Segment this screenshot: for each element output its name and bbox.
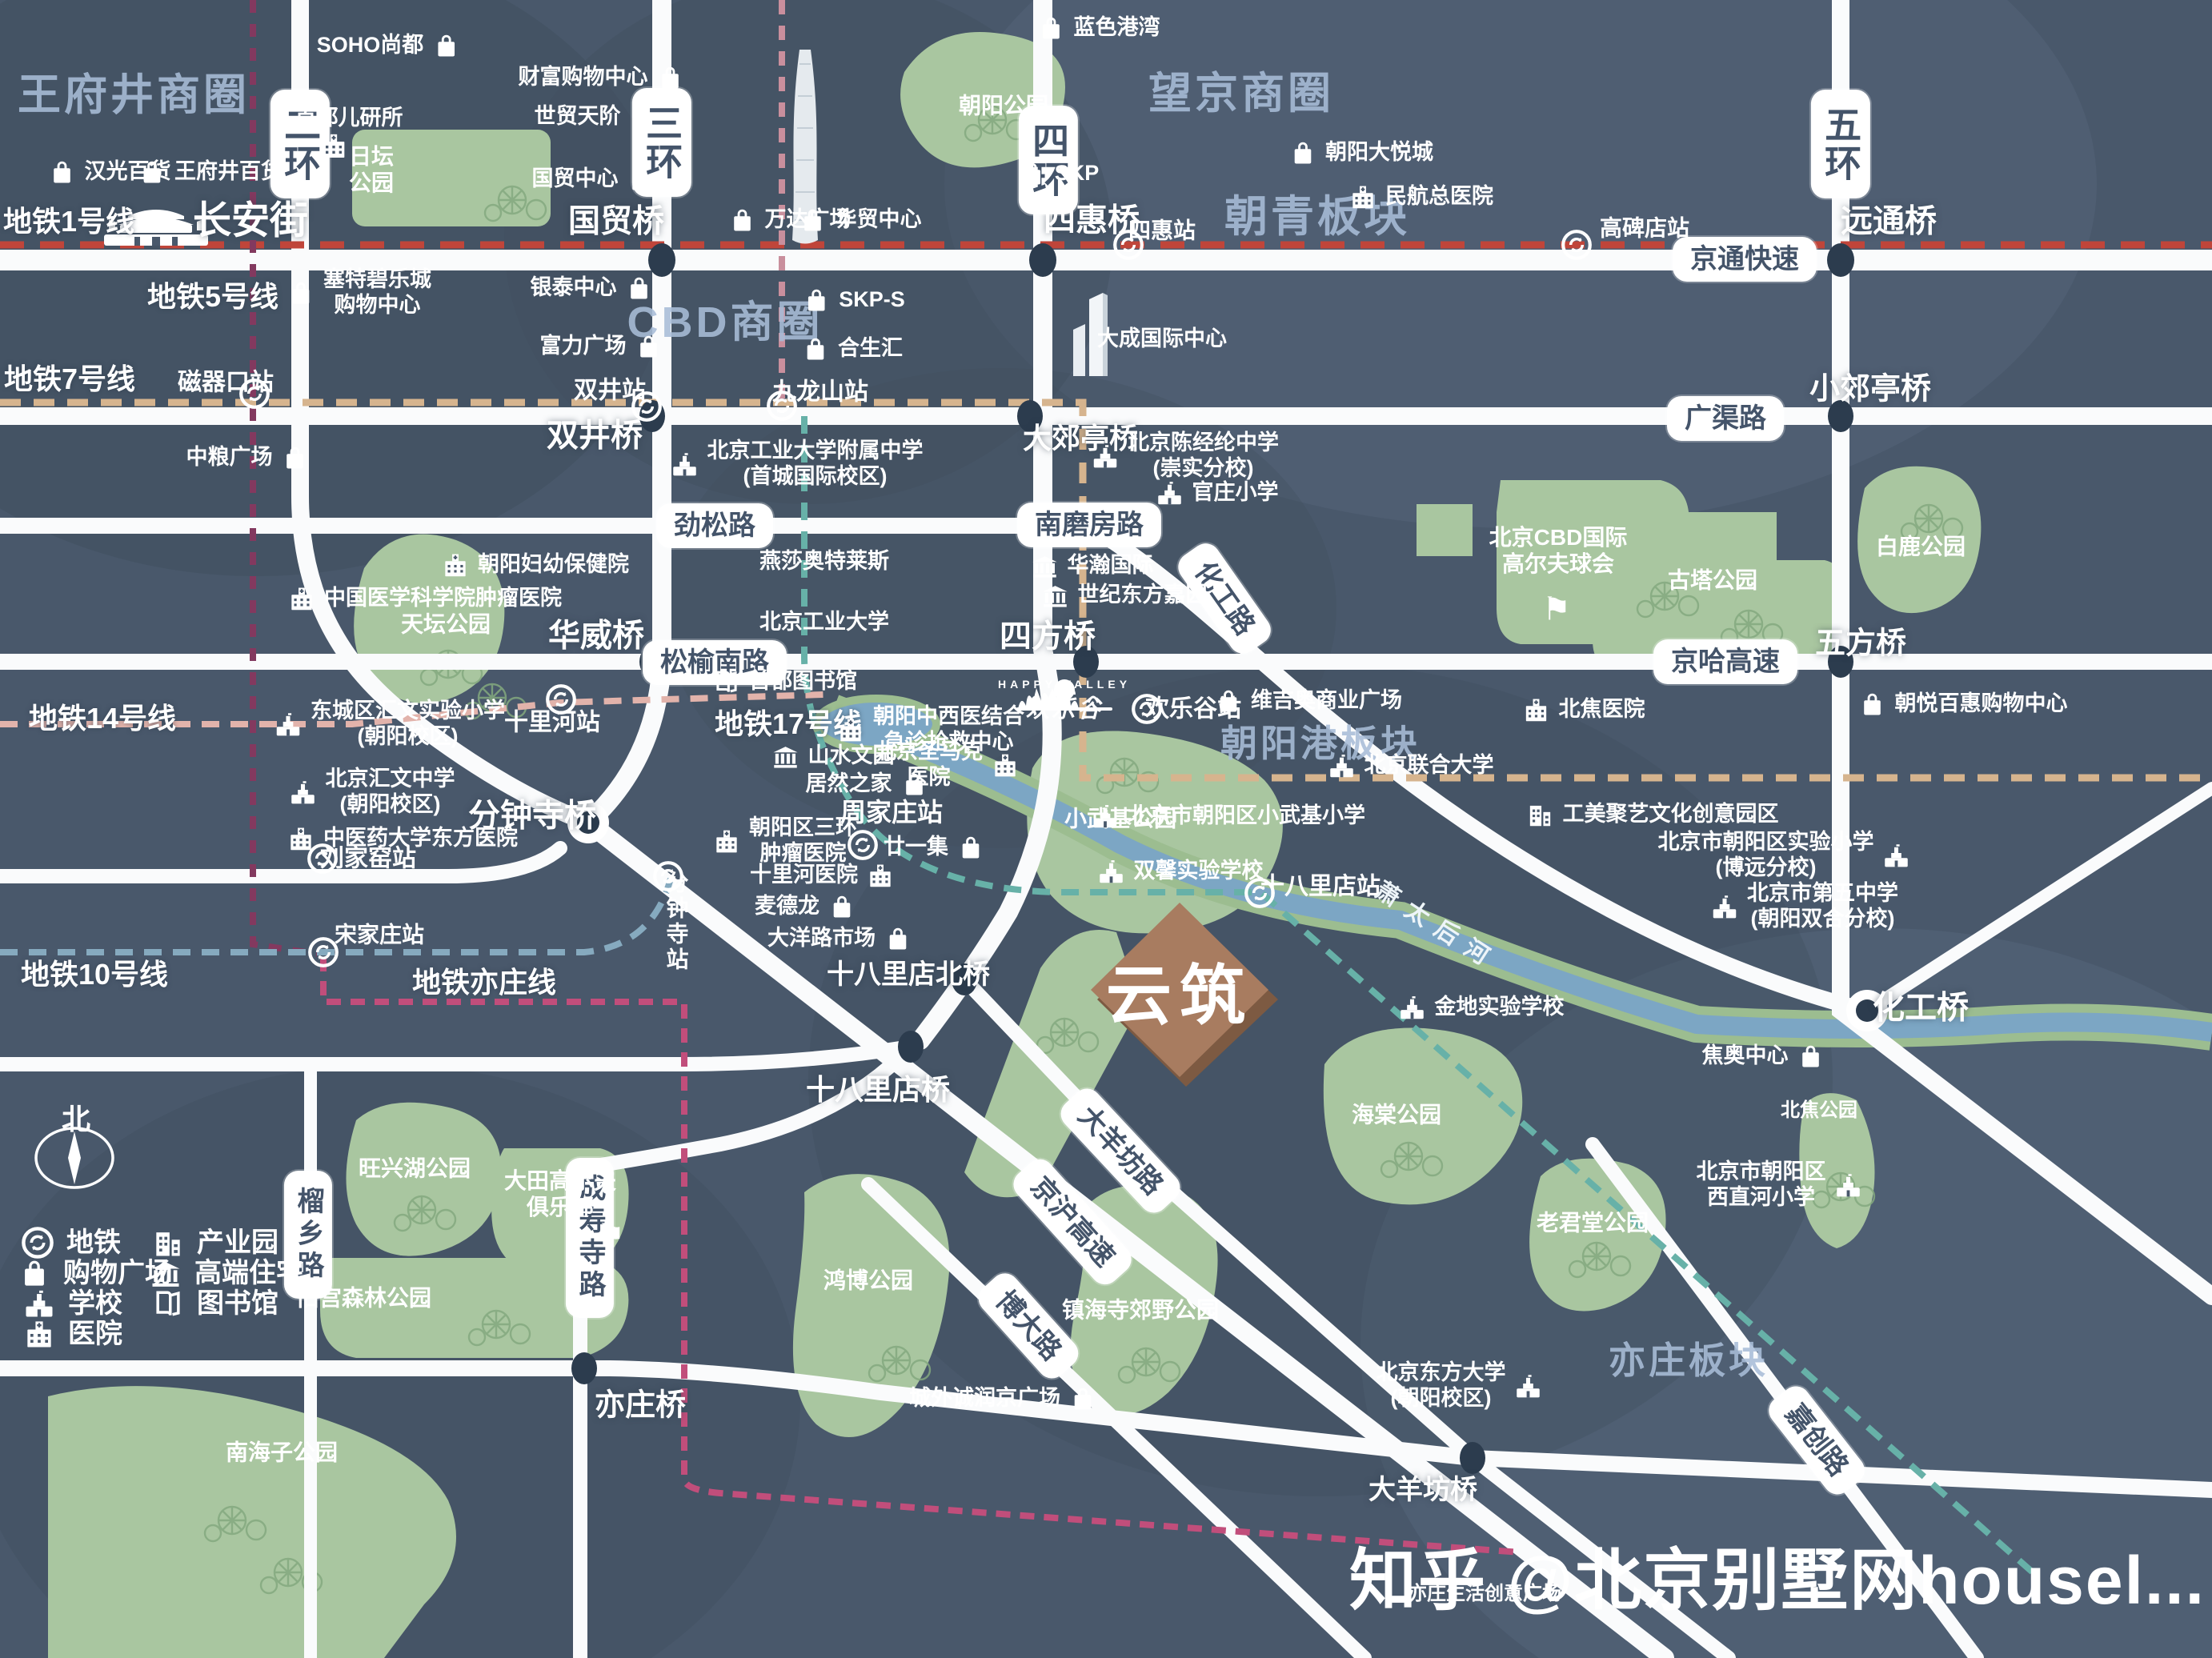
project-logo-text: 云筑: [1106, 943, 1253, 1038]
happy-valley-cn: 欢乐谷: [998, 691, 1131, 724]
watermark: 知乎 @北京别墅网housel...: [1349, 1527, 2206, 1624]
map-artwork: [0, 0, 2212, 1658]
compass-north-label: 北: [62, 1096, 90, 1138]
happy-valley-en: HAPPY VALLEY: [998, 678, 1131, 691]
map-canvas: 王府井商圈望京商圈CBD商圈朝青板块朝阳港板块亦庄板块地铁1号线地铁5号线地铁7…: [0, 0, 2212, 1658]
happy-valley-logo: HAPPY VALLEY 欢乐谷: [998, 678, 1131, 724]
